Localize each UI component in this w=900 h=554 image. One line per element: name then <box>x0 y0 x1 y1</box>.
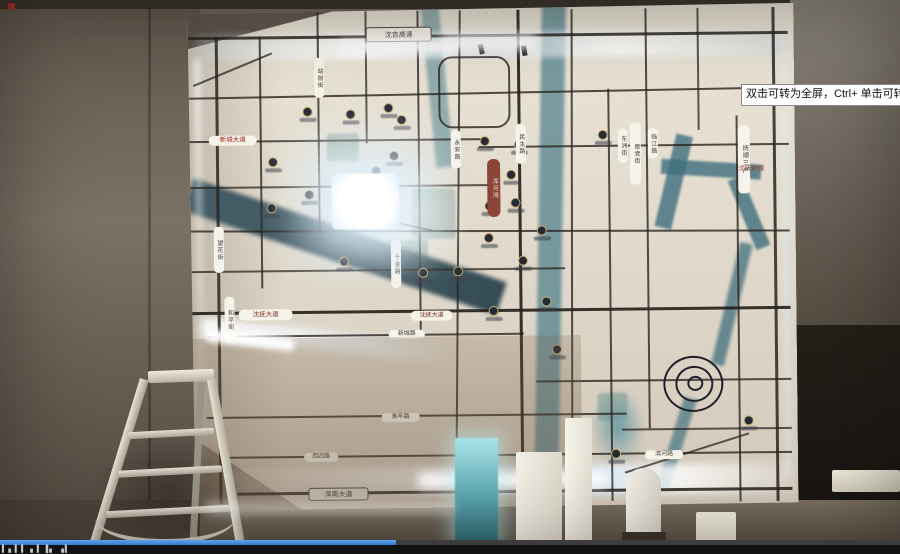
video-frame[interactable]: 沈吉高速浑南大道新城大道沈抚大道沈抚大道西四路新城路青年路滨河路望花街和平街站前… <box>0 0 900 554</box>
floor-light-streak <box>205 502 455 514</box>
model-cylinder <box>626 468 661 538</box>
model-column-tall <box>565 418 592 554</box>
player-controls-row: ▍▖▍▍▗ ▍▐▖ ▗▍ <box>0 545 900 554</box>
ladder-top-cap <box>148 369 214 383</box>
river-model-acrylic <box>455 438 498 543</box>
ladder-spreader <box>95 492 235 544</box>
video-player-bar: ▍▖▍▍▗ ▍▐▖ ▗▍ <box>0 538 900 554</box>
model-ledge <box>832 470 900 492</box>
player-caption-illegible: ▍▖▍▍▗ ▍▐▖ ▗▍ <box>2 545 71 553</box>
fullscreen-hint-tooltip: 双击可转为全屏，Ctrl+ 单击可转为 <box>741 84 900 106</box>
